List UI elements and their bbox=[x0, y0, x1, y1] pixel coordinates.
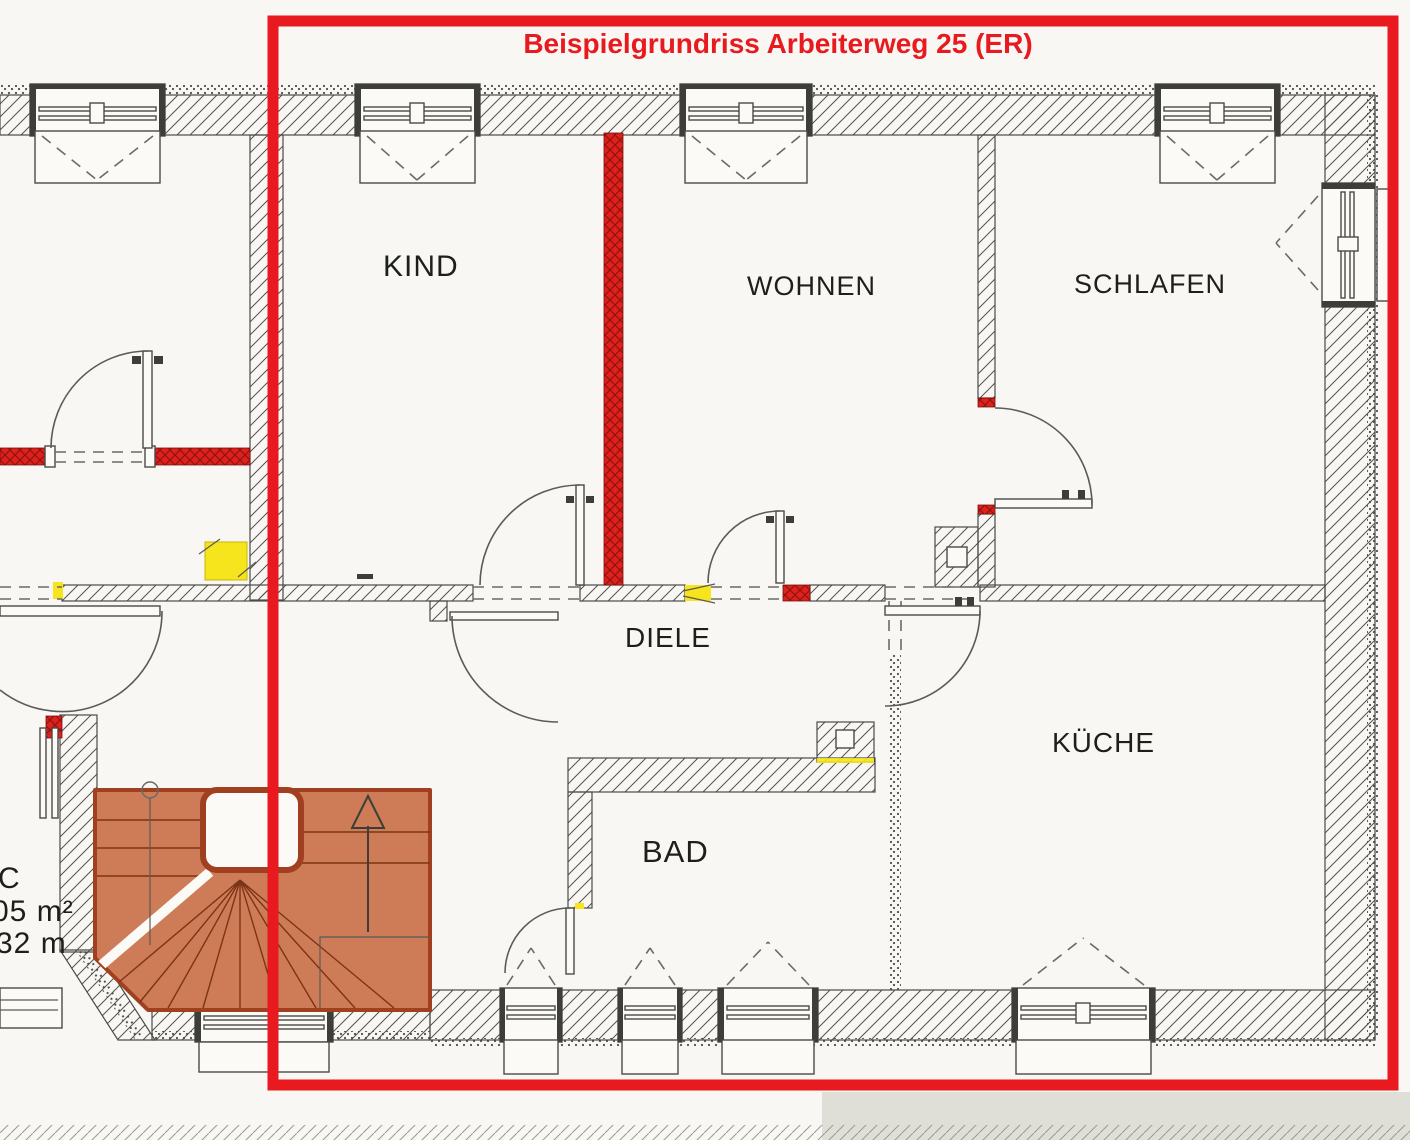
floor-plan-canvas: KIND WOHNEN SCHLAFEN DIELE BAD KÜCHE C 0… bbox=[0, 0, 1410, 1140]
red-wall-kind-wohnen bbox=[604, 133, 623, 585]
window-bad-bottom-2 bbox=[618, 948, 682, 1074]
room-label-wohnen: WOHNEN bbox=[747, 271, 876, 301]
chimney-block bbox=[817, 722, 874, 763]
door-kind bbox=[480, 485, 594, 585]
window-schlafen-top bbox=[1155, 84, 1280, 183]
stair-well bbox=[203, 790, 301, 870]
floor-plan-page: KIND WOHNEN SCHLAFEN DIELE BAD KÜCHE C 0… bbox=[0, 0, 1410, 1140]
scan-artifacts bbox=[0, 1092, 1410, 1140]
window-schlafen-right bbox=[1276, 183, 1395, 307]
window-wohnen bbox=[680, 84, 812, 183]
door-wohnen bbox=[708, 511, 794, 583]
room-label-kueche: KÜCHE bbox=[1052, 727, 1155, 758]
window-bad-bottom-1 bbox=[500, 948, 562, 1074]
door-bad bbox=[505, 908, 574, 974]
side-annotation-line3: 32 m bbox=[0, 927, 67, 960]
door-left-room bbox=[51, 351, 163, 448]
side-annotation-line2: 05 m² bbox=[0, 895, 74, 928]
door-schlafen bbox=[995, 408, 1092, 508]
window-bad-bottom-3 bbox=[718, 942, 818, 1074]
window-stairwell-bottom bbox=[195, 1006, 333, 1072]
page-title: Beispielgrundriss Arbeiterweg 25 (ER) bbox=[523, 28, 1032, 59]
chimney-block bbox=[935, 527, 978, 587]
room-label-bad: BAD bbox=[642, 834, 709, 869]
window-kind bbox=[355, 84, 480, 183]
side-annotation-line1: C bbox=[0, 862, 21, 895]
window-corner-left bbox=[0, 988, 62, 1028]
door-left-wall bbox=[40, 728, 58, 818]
wall-openings bbox=[0, 452, 980, 599]
window-kueche-bottom bbox=[1012, 938, 1155, 1074]
room-label-diele: DIELE bbox=[625, 622, 711, 653]
door-hall bbox=[0, 606, 162, 712]
window-top-left bbox=[30, 84, 165, 183]
room-label-schlafen: SCHLAFEN bbox=[1074, 269, 1226, 299]
room-label-kind: KIND bbox=[383, 250, 459, 283]
staircase bbox=[95, 782, 430, 1010]
